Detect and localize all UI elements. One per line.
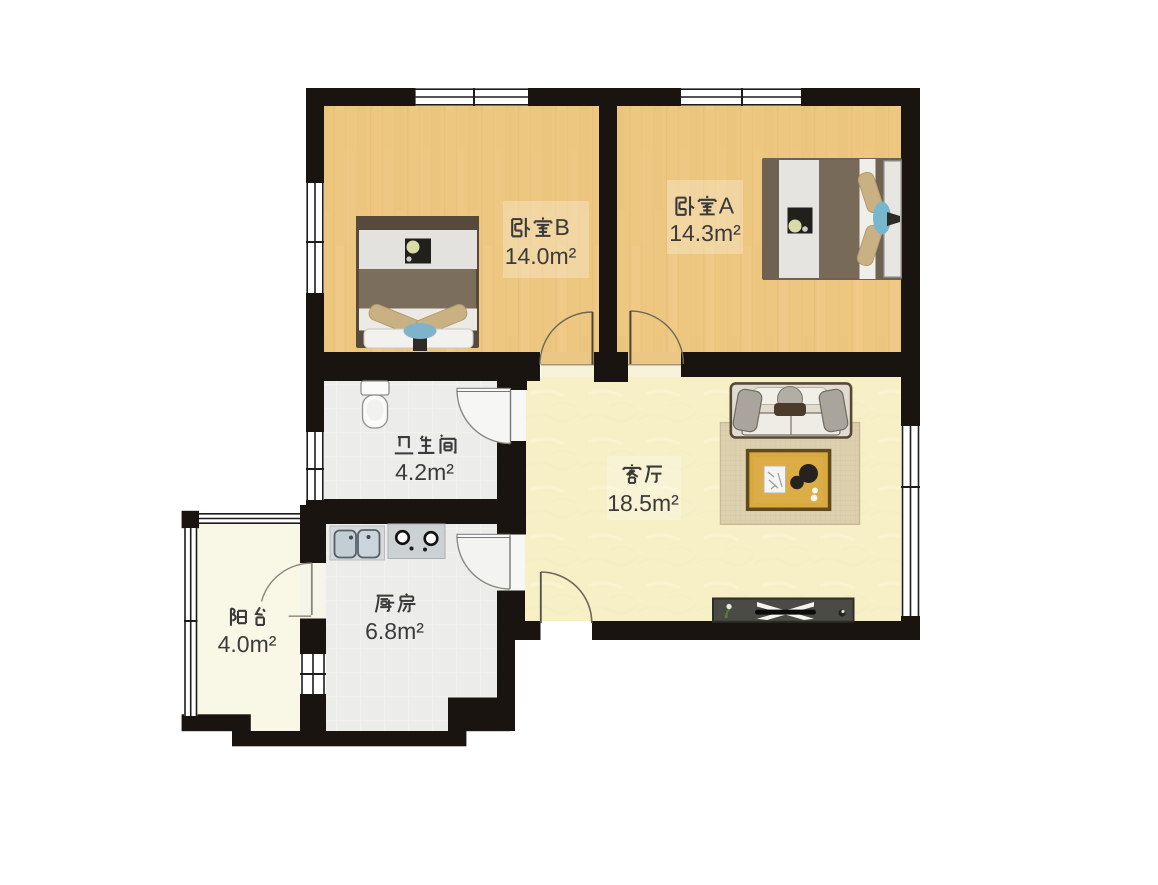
svg-text:A: A — [719, 193, 735, 219]
svg-text:18.5m²: 18.5m² — [607, 490, 679, 516]
svg-text:6.8m²: 6.8m² — [365, 618, 424, 644]
svg-text:B: B — [555, 214, 570, 240]
svg-text:4.0m²: 4.0m² — [218, 631, 277, 657]
svg-text:14.3m²: 14.3m² — [669, 220, 741, 246]
svg-text:14.0m²: 14.0m² — [505, 243, 577, 269]
svg-text:4.2m²: 4.2m² — [395, 459, 454, 485]
